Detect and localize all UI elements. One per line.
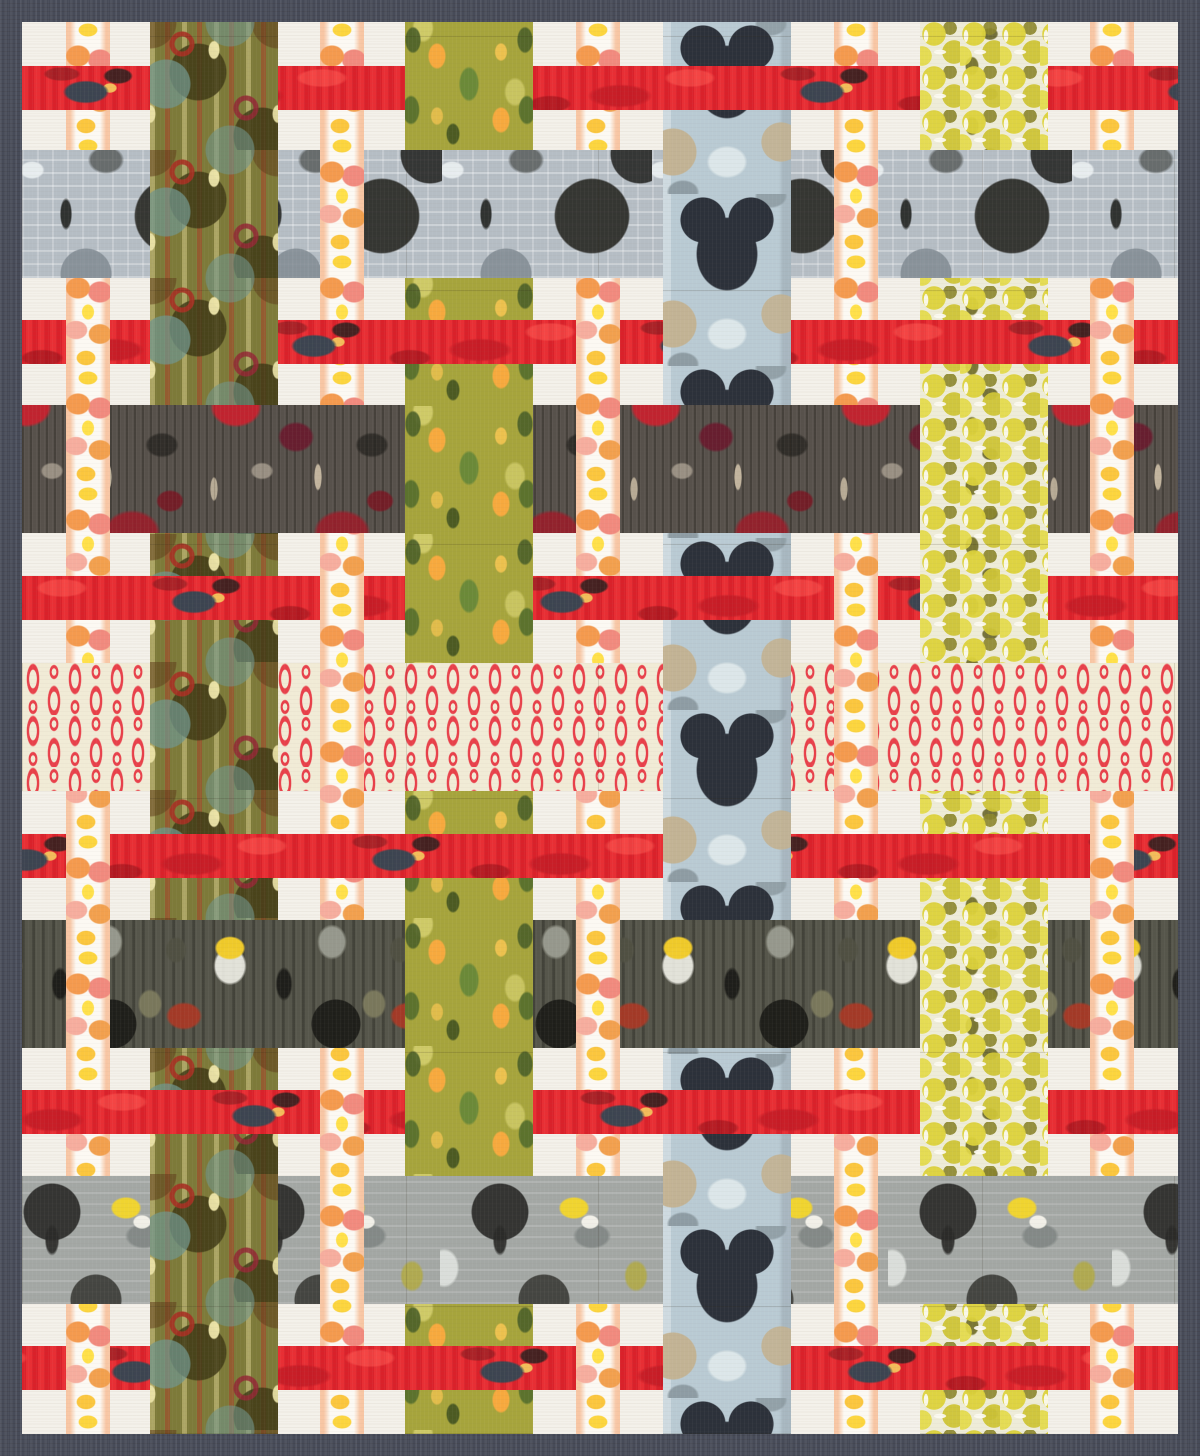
weave-patch-c2-over-r1 [320,150,364,278]
weave-patch-c3-over-r3 [405,405,533,533]
weave-patch-c0-over-r3 [66,405,110,533]
weave-patch-c2-over-r4 [320,576,364,620]
weave-patch-c1-over-r10 [150,1346,278,1390]
weave-patch-c4-over-r7 [576,920,620,1048]
weave-patch-c2-over-r5 [320,663,364,791]
weave-patch-c0-over-r2 [66,320,110,364]
weave-patch-c4-over-r3 [576,405,620,533]
weave-patch-c4-over-r10 [576,1346,620,1390]
weave-patch-c8-over-r7 [1090,920,1134,1048]
weave-patch-c3-over-r8 [405,1090,533,1134]
horizontal-strip-r6-red [22,834,1178,878]
weave-patch-c5-over-r2 [663,320,791,364]
weave-patch-c8-over-r6 [1090,834,1134,878]
weave-patch-c0-over-r10 [66,1346,110,1390]
weave-patch-c6-over-r9 [834,1176,878,1304]
weave-patch-c3-over-r4 [405,576,533,620]
weave-patch-c5-over-r9 [663,1176,791,1304]
weave-patch-c1-over-r9 [150,1176,278,1304]
weave-patch-c1-over-r0 [150,66,278,110]
weave-patch-c5-over-r10 [663,1346,791,1390]
weave-patch-c4-over-r2 [576,320,620,364]
weave-patch-c7-over-r8 [920,1090,1048,1134]
weave-patch-c1-over-r1 [150,150,278,278]
weave-patch-c7-over-r7 [920,920,1048,1048]
weave-patch-c6-over-r4 [834,576,878,620]
weave-patch-c5-over-r5 [663,663,791,791]
weave-patch-c5-over-r6 [663,834,791,878]
weave-patch-c6-over-r5 [834,663,878,791]
weave-patch-c7-over-r0 [920,66,1048,110]
weave-patch-c8-over-r10 [1090,1346,1134,1390]
quilt-weave-area [22,22,1178,1434]
weave-patch-c3-over-r7 [405,920,533,1048]
weave-patch-c2-over-r9 [320,1176,364,1304]
quilt-mockup [0,0,1200,1456]
weave-patch-c2-over-r8 [320,1090,364,1134]
weave-patch-c7-over-r4 [920,576,1048,620]
weave-patch-c5-over-r1 [663,150,791,278]
weave-patch-c3-over-r0 [405,66,533,110]
weave-patch-c7-over-r3 [920,405,1048,533]
weave-patch-c1-over-r5 [150,663,278,791]
weave-patch-c8-over-r2 [1090,320,1134,364]
weave-patch-c8-over-r3 [1090,405,1134,533]
weave-patch-c0-over-r6 [66,834,110,878]
weave-patch-c0-over-r7 [66,920,110,1048]
weave-patch-c6-over-r1 [834,150,878,278]
weave-patch-c1-over-r2 [150,320,278,364]
